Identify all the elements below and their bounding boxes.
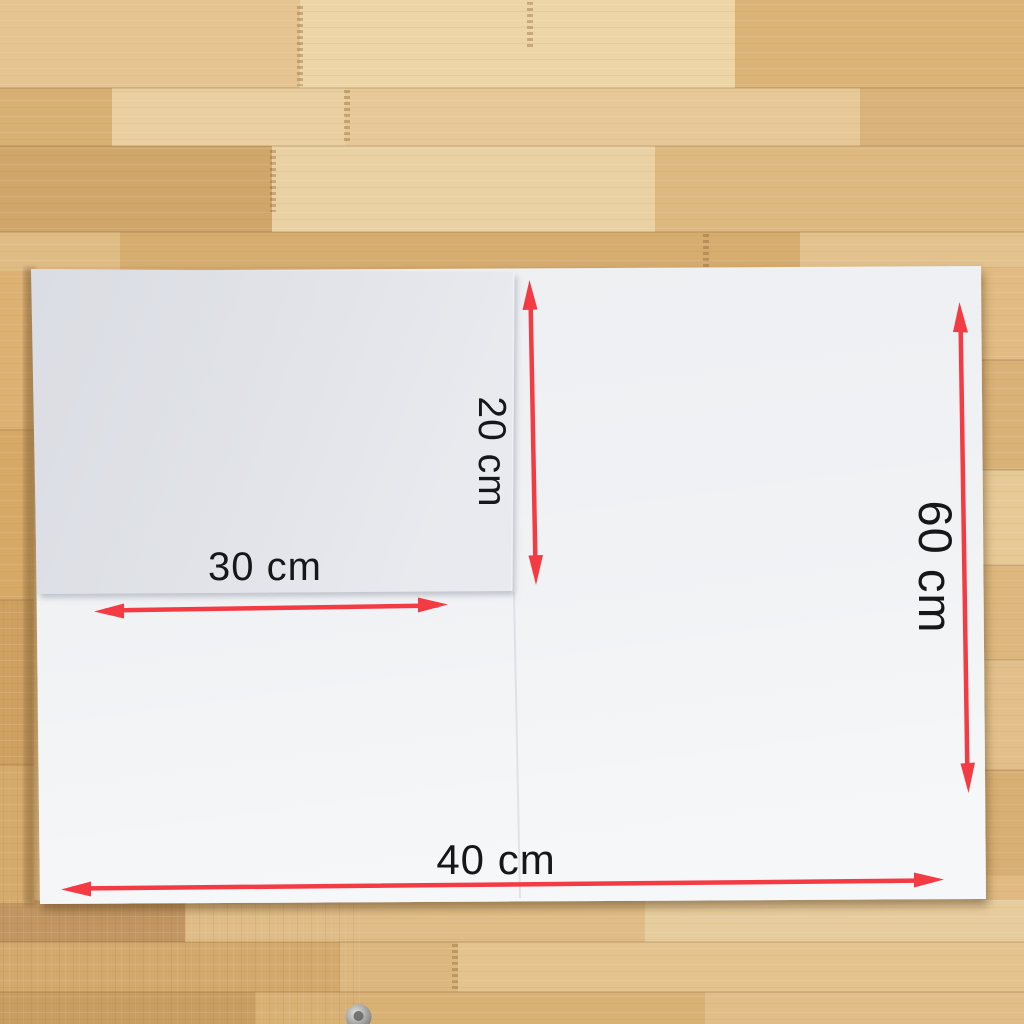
- label-60cm: 60 cm: [905, 487, 965, 647]
- screw-head-center: [354, 1011, 364, 1021]
- label-30cm: 30 cm: [185, 542, 345, 592]
- product-photo: 20 cm 30 cm 60 cm 40 cm: [0, 0, 1024, 1024]
- wood-grain-vertical: [0, 900, 360, 1024]
- label-40cm: 40 cm: [416, 835, 576, 885]
- label-20cm: 20 cm: [466, 372, 516, 532]
